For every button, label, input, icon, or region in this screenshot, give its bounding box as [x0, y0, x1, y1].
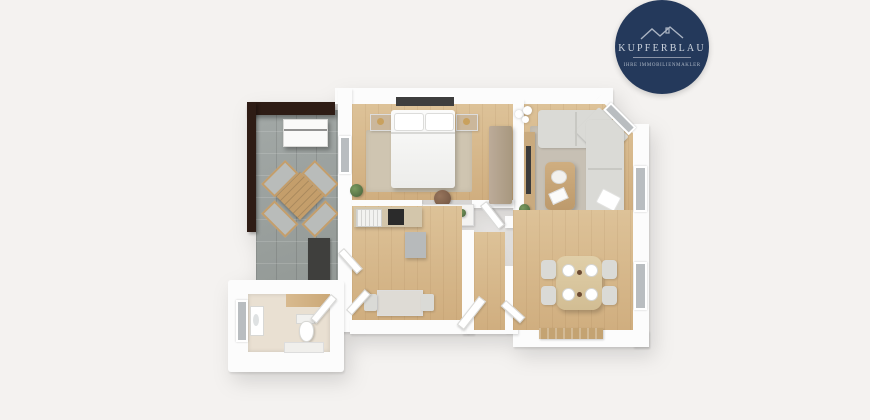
dining-chair — [602, 260, 617, 279]
wall-top — [335, 88, 613, 104]
dining-chair — [541, 260, 556, 279]
terrace-dark-mat — [308, 238, 330, 282]
floor-plan — [0, 0, 870, 420]
wall-right — [633, 124, 649, 347]
kitchen-cabinet — [405, 232, 426, 258]
dining-chair — [541, 286, 556, 305]
brand-tagline: IHRE IMMOBILIENMAKLER — [623, 62, 700, 68]
scene: KUPFERBLAU IHRE IMMOBILIENMAKLER — [0, 0, 870, 420]
bed-pillow — [425, 113, 454, 131]
washbasin-bowl — [253, 314, 259, 326]
dining-chair — [602, 286, 617, 305]
kitchen-table — [377, 290, 423, 316]
wardrobe — [489, 126, 512, 204]
logo-divider — [633, 57, 691, 58]
plant-bedroom — [350, 184, 363, 197]
toilet-bowl — [299, 321, 314, 342]
sofa-cushion-line — [575, 112, 577, 146]
kitchen-chair — [421, 294, 434, 311]
sofa-cushion-line — [588, 168, 622, 170]
window-dining-right-lower — [634, 262, 647, 310]
wall-kitchen-bottom — [350, 318, 468, 334]
lamp-icon — [463, 118, 470, 125]
brand-logo: KUPFERBLAU IHRE IMMOBILIENMAKLER — [615, 0, 709, 94]
place-setting — [585, 288, 598, 301]
place-setting — [585, 264, 598, 277]
tv-screen — [526, 146, 531, 194]
table-centerpiece — [577, 270, 582, 275]
bed-pillow — [394, 113, 424, 131]
lamp-icon — [377, 118, 384, 125]
brand-name: KUPFERBLAU — [618, 43, 706, 54]
window-dining-right-upper — [634, 166, 647, 212]
roofline-icon — [640, 25, 684, 41]
cooktop — [388, 209, 404, 225]
place-setting — [562, 288, 575, 301]
coffee-table-tray — [551, 170, 567, 184]
bed-blanket-fold — [391, 132, 455, 134]
kitchen-sink — [356, 209, 382, 227]
window-bedroom-top — [396, 95, 454, 106]
dining-doormat — [539, 328, 603, 339]
bath-mat — [284, 342, 324, 353]
table-centerpiece — [577, 292, 582, 297]
place-setting — [562, 264, 575, 277]
hall-floor — [474, 232, 505, 330]
window-bedroom-left — [339, 136, 351, 174]
outdoor-bench-unit — [283, 119, 328, 147]
ceiling-lamp-icon — [515, 106, 535, 126]
pergola-beam-left — [247, 102, 256, 232]
window-bathroom-left — [236, 300, 248, 342]
pergola-beam-top — [247, 102, 335, 115]
